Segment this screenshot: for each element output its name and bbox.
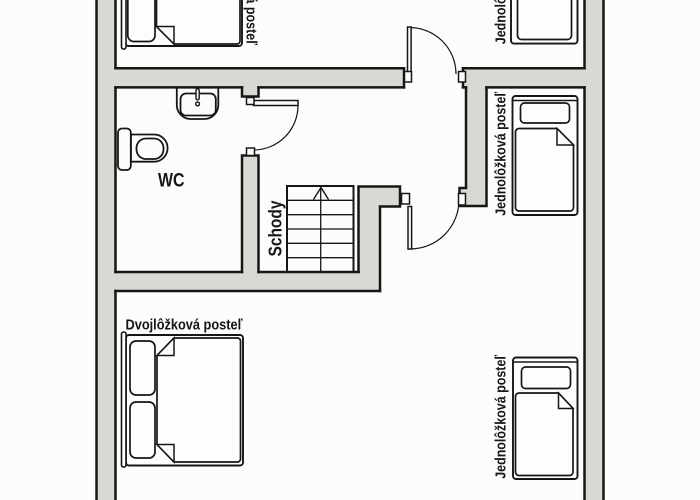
svg-text:Dvojlôžková posteľ: Dvojlôžková posteľ (126, 317, 243, 334)
svg-text:Jednolôžková posteľ: Jednolôžková posteľ (494, 91, 510, 215)
svg-text:WC: WC (158, 170, 185, 192)
svg-text:Jednolôžková posteľ: Jednolôžková posteľ (243, 0, 259, 45)
svg-text:Jednolôžková posteľ: Jednolôžková posteľ (494, 0, 510, 44)
svg-text:Jednolôžková posteľ: Jednolôžková posteľ (494, 354, 510, 478)
svg-text:Schody: Schody (265, 200, 286, 257)
